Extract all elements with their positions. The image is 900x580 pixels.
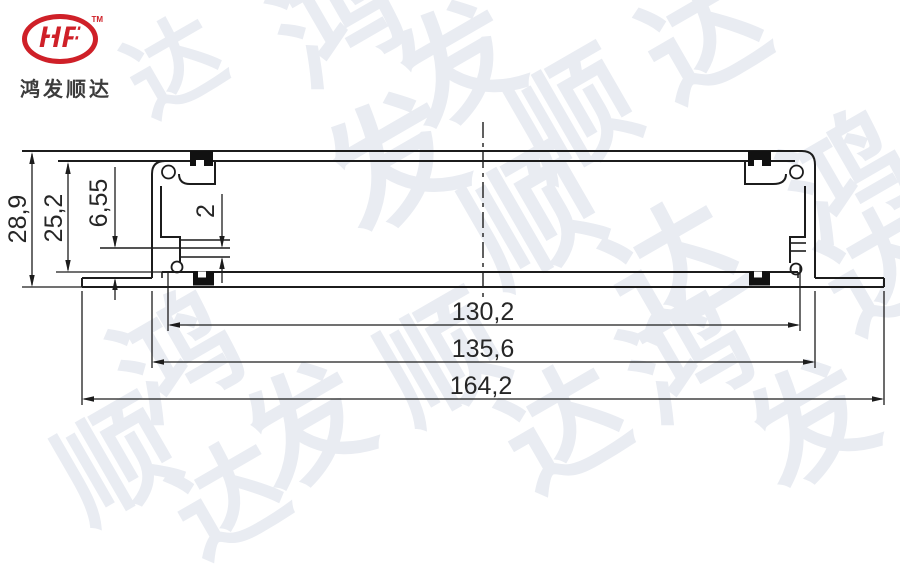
dim-label-inner-height: 25,2 <box>40 194 68 243</box>
dim-label-total-height: 28,9 <box>4 195 32 244</box>
company-logo: HF TM 鸿发顺达 <box>22 14 112 102</box>
trademark-symbol: TM <box>91 15 103 24</box>
technical-drawing: 28,9 25,2 6,55 2 130,2 135,6 164,2 <box>0 0 900 500</box>
left-corner-channel <box>152 161 165 278</box>
right-screw-channel-circle <box>790 166 803 179</box>
dim-label-step-height: 6,55 <box>85 179 113 228</box>
dimension-labels: 28,9 25,2 6,55 2 130,2 135,6 164,2 <box>4 179 514 400</box>
dim-label-inner-width: 130,2 <box>452 298 515 326</box>
dim-label-slot-width: 2 <box>192 204 220 218</box>
logo-ellipse-icon: HF TM <box>22 14 98 64</box>
logo-hf-text: HF <box>39 21 81 55</box>
dim-label-total-width: 164,2 <box>450 372 513 400</box>
left-screw-channel-circle <box>162 166 175 179</box>
company-name: 鸿发顺达 <box>20 73 112 102</box>
profile-outline <box>22 151 884 287</box>
screw-bosses <box>190 151 771 286</box>
top-panel <box>22 151 815 278</box>
left-bottom-screw-circle <box>172 262 183 273</box>
screw-boss-notches <box>196 160 762 278</box>
left-wall-inner <box>161 186 180 262</box>
dim-label-body-width: 135,6 <box>452 335 515 363</box>
